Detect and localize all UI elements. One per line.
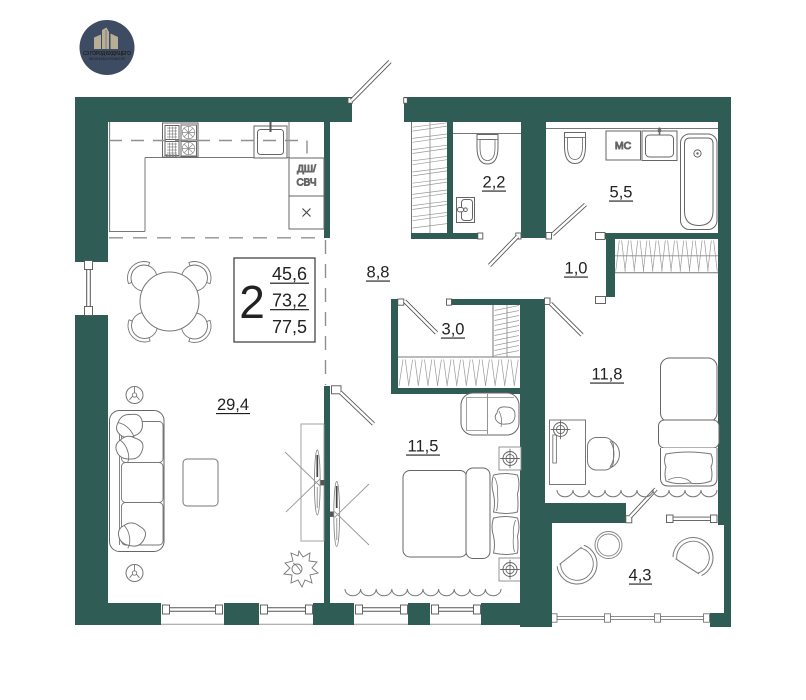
- svg-text:11,5: 11,5: [408, 438, 439, 456]
- svg-text:5,5: 5,5: [610, 184, 633, 202]
- svg-text:45,6: 45,6: [272, 264, 307, 284]
- svg-text:73,2: 73,2: [272, 291, 307, 311]
- svg-text:3,0: 3,0: [442, 321, 465, 339]
- svg-text:СВЧ: СВЧ: [296, 178, 316, 189]
- svg-text:29,4: 29,4: [217, 396, 249, 414]
- svg-text:2,2: 2,2: [483, 174, 506, 192]
- svg-text:4,3: 4,3: [629, 567, 652, 585]
- svg-text:77,5: 77,5: [272, 317, 307, 337]
- svg-text:МЕХАНИЗМЫ РАЗВИТИЯ: МЕХАНИЗМЫ РАЗВИТИЯ: [89, 57, 126, 61]
- svg-text:МС: МС: [615, 140, 632, 152]
- svg-text:8,8: 8,8: [367, 264, 390, 282]
- svg-text:11,8: 11,8: [592, 366, 623, 384]
- svg-text:ДШ/: ДШ/: [297, 164, 316, 175]
- svg-text:2: 2: [239, 276, 265, 328]
- svg-text:1,0: 1,0: [565, 260, 588, 278]
